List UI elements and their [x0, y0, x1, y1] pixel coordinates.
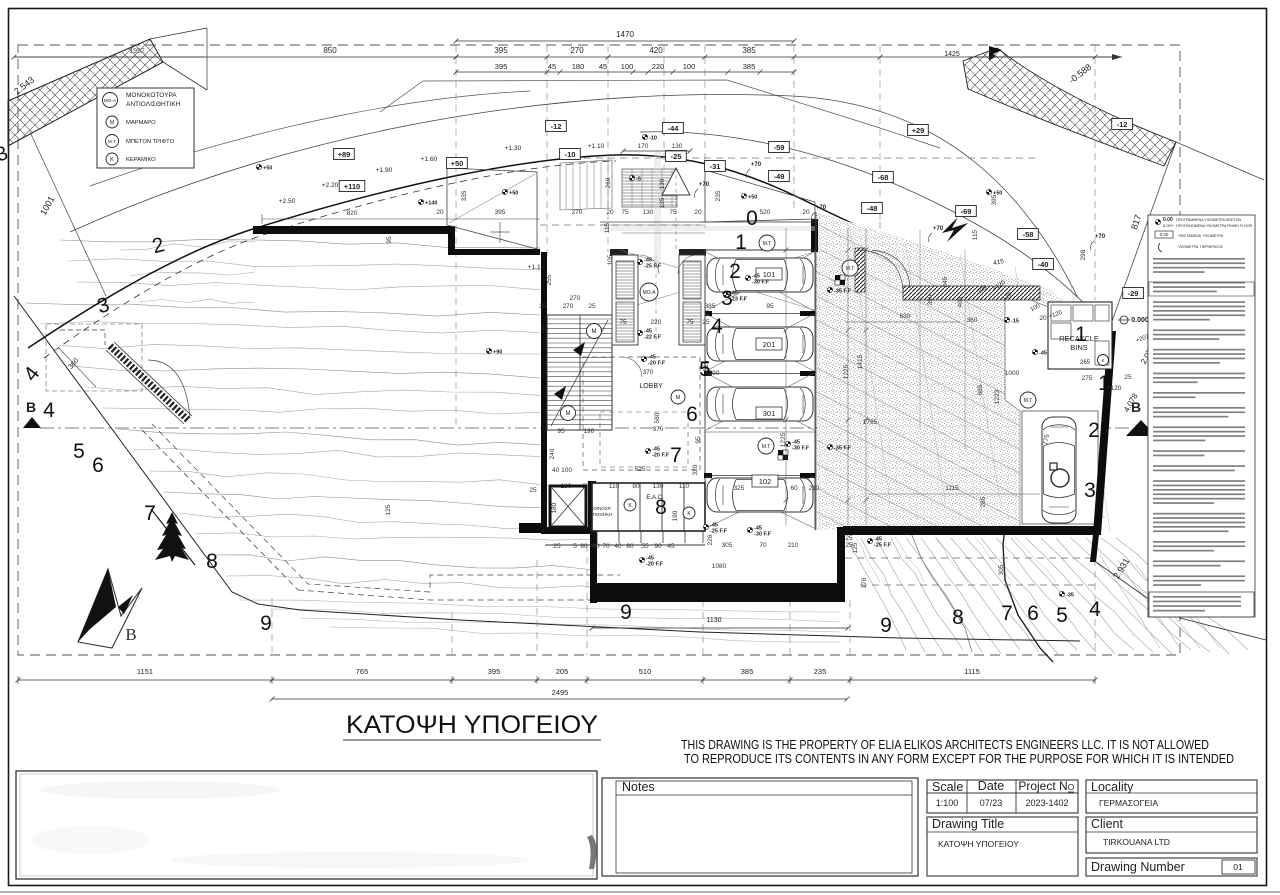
svg-text:20: 20 — [436, 209, 444, 216]
svg-text:ΚΑΤΟΨΗ ΥΠΟΓΕΙΟΥ: ΚΑΤΟΨΗ ΥΠΟΓΕΙΟΥ — [346, 711, 598, 739]
svg-text:190: 190 — [584, 428, 595, 435]
svg-text:-20 F.F: -20 F.F — [648, 361, 666, 367]
svg-text:-10: -10 — [649, 136, 657, 142]
svg-text:520: 520 — [760, 209, 771, 216]
svg-text:LOBBY: LOBBY — [639, 383, 663, 390]
svg-text:335: 335 — [461, 190, 468, 201]
svg-text:+50: +50 — [263, 166, 272, 172]
svg-text:240: 240 — [549, 448, 556, 459]
svg-text:0.000: 0.000 — [1131, 317, 1149, 324]
svg-text:7: 7 — [670, 444, 682, 467]
svg-text:102: 102 — [759, 477, 772, 486]
svg-text:270: 270 — [572, 209, 583, 216]
svg-text:Drawing Number: Drawing Number — [1091, 860, 1185, 874]
svg-text:Date: Date — [978, 779, 1004, 793]
svg-text:1130: 1130 — [706, 617, 721, 624]
svg-text:+1.10: +1.10 — [588, 143, 605, 150]
svg-text:2: 2 — [729, 260, 741, 283]
svg-text:+2.50: +2.50 — [279, 198, 296, 205]
svg-text:45: 45 — [599, 62, 607, 71]
svg-text:M.T: M.T — [1024, 398, 1033, 404]
svg-text:80: 80 — [580, 543, 588, 550]
svg-text:420: 420 — [649, 46, 663, 55]
svg-text:525: 525 — [635, 466, 646, 473]
svg-text:395: 395 — [488, 667, 501, 676]
svg-text:385: 385 — [743, 62, 756, 71]
svg-text:-30 F.F: -30 F.F — [752, 280, 770, 286]
svg-text:1: 1 — [1075, 323, 1087, 346]
svg-text:4: 4 — [43, 399, 55, 422]
svg-text:370: 370 — [653, 426, 664, 433]
svg-text:+70: +70 — [751, 162, 762, 168]
svg-text:ΚΑΤΟΨΗ ΥΠΟΓΕΙΟΥ: ΚΑΤΟΨΗ ΥΠΟΓΕΙΟΥ — [938, 839, 1019, 849]
svg-text:ΠΡΟΤΕΙΝΟΜΕΝΑ ΥΨΟΜΕΤΡΑ FINISH F: ΠΡΟΤΕΙΝΟΜΕΝΑ ΥΨΟΜΕΤΡΑ FINISH FLOOR — [1176, 224, 1253, 228]
svg-text:1000: 1000 — [1005, 370, 1020, 377]
svg-text:TO REPRODUCE ITS CONTENTS IN A: TO REPRODUCE ITS CONTENTS IN ANY FORM EX… — [684, 752, 1234, 766]
svg-text:1: 1 — [1098, 372, 1110, 395]
svg-text:390: 390 — [927, 294, 934, 305]
svg-text:80: 80 — [632, 483, 640, 490]
svg-text:-68: -68 — [878, 173, 889, 182]
svg-text:+70: +70 — [933, 226, 944, 232]
svg-text:4: 4 — [1089, 598, 1101, 621]
svg-text:305: 305 — [998, 564, 1005, 575]
svg-text:201: 201 — [763, 340, 776, 349]
svg-text:-35 F.F: -35 F.F — [834, 289, 852, 295]
svg-text:1115: 1115 — [964, 667, 980, 676]
svg-text:-45: -45 — [1039, 351, 1047, 357]
svg-text:70: 70 — [602, 543, 610, 550]
svg-text:+70: +70 — [816, 205, 827, 211]
svg-text:Notes: Notes — [622, 780, 655, 794]
svg-text:403: 403 — [957, 296, 964, 307]
svg-text:1992: 1992 — [129, 48, 145, 55]
svg-text:-49: -49 — [774, 172, 785, 181]
svg-text:+1.30: +1.30 — [505, 145, 522, 152]
svg-text:25: 25 — [553, 543, 561, 550]
svg-text:6: 6 — [686, 403, 698, 426]
svg-text:685: 685 — [977, 384, 984, 395]
svg-text:M.T: M.T — [763, 241, 772, 247]
svg-text:TIRKOUANA LTD: TIRKOUANA LTD — [1103, 837, 1170, 847]
svg-text:1115: 1115 — [945, 485, 959, 492]
svg-text:20: 20 — [694, 209, 702, 216]
svg-text:+140: +140 — [425, 201, 437, 207]
svg-text:MO-A: MO-A — [642, 290, 656, 296]
svg-text:-15: -15 — [1011, 319, 1019, 325]
svg-text:125: 125 — [852, 542, 859, 553]
svg-text:40 100: 40 100 — [552, 467, 572, 474]
svg-text:395: 395 — [495, 209, 506, 216]
svg-text:ΚΟΙΝΟΧΡ.: ΚΟΙΝΟΧΡ. — [590, 506, 611, 511]
svg-text:-12: -12 — [1117, 120, 1128, 129]
svg-text:-25 F.F: -25 F.F — [874, 543, 892, 549]
svg-text:+50: +50 — [451, 159, 464, 168]
svg-text:-35 F.F: -35 F.F — [834, 446, 852, 452]
svg-text:260: 260 — [605, 177, 612, 188]
svg-text:130: 130 — [643, 209, 654, 216]
svg-text:170: 170 — [638, 143, 649, 150]
svg-text:M: M — [110, 120, 115, 126]
svg-text:25: 25 — [582, 483, 590, 490]
svg-text:ΑΝΤΙΟΛΙΣΘΗΤΙΚΗ: ΑΝΤΙΟΛΙΣΘΗΤΙΚΗ — [126, 101, 181, 108]
svg-text:1415: 1415 — [857, 354, 864, 369]
svg-text:1: 1 — [735, 231, 747, 254]
svg-text:B: B — [125, 625, 136, 644]
svg-text:180: 180 — [561, 483, 572, 490]
svg-text:M.T: M.T — [108, 139, 116, 145]
svg-text:25: 25 — [529, 487, 537, 494]
svg-text:K: K — [110, 157, 114, 163]
svg-text:B: B — [1131, 399, 1141, 415]
svg-text:25: 25 — [539, 303, 547, 310]
svg-text:3: 3 — [1084, 479, 1096, 502]
svg-text:-30 F.F: -30 F.F — [792, 446, 810, 452]
svg-text:90: 90 — [654, 543, 662, 550]
svg-text:80: 80 — [626, 543, 634, 550]
svg-text:Project N: Project N — [1018, 779, 1067, 793]
svg-text:176: 176 — [861, 577, 868, 588]
svg-text:850: 850 — [323, 46, 337, 55]
svg-text:210: 210 — [809, 485, 820, 492]
svg-text:ΠΡΟΓΡΑΜΜΕΝΑ ΥΨΟΜΕΤΡΑ ΜΠΕΤΟΝ: ΠΡΟΓΡΑΜΜΕΝΑ ΥΨΟΜΕΤΡΑ ΜΠΕΤΟΝ — [1176, 218, 1241, 222]
svg-text:3: 3 — [721, 287, 733, 310]
svg-text:370: 370 — [643, 369, 654, 376]
svg-text:+2.20: +2.20 — [322, 182, 339, 189]
svg-text:-5: -5 — [636, 177, 641, 183]
svg-text:100: 100 — [683, 62, 696, 71]
svg-text:270: 270 — [570, 295, 581, 302]
svg-text:Drawing Title: Drawing Title — [932, 817, 1004, 831]
svg-text:385: 385 — [741, 667, 754, 676]
svg-text:-31: -31 — [710, 162, 721, 171]
svg-text:265: 265 — [1080, 360, 1091, 366]
svg-text:Client: Client — [1091, 817, 1123, 831]
svg-text:95: 95 — [557, 428, 565, 435]
svg-text:820: 820 — [347, 210, 358, 217]
svg-text:360: 360 — [967, 317, 978, 324]
svg-text:21: 21 — [541, 325, 549, 332]
svg-text:180: 180 — [572, 62, 585, 71]
svg-text:25: 25 — [702, 319, 710, 326]
svg-text:60: 60 — [790, 485, 798, 492]
svg-text:226: 226 — [707, 534, 714, 545]
svg-text:510: 510 — [639, 667, 652, 676]
svg-text:8: 8 — [655, 496, 667, 519]
svg-text:270: 270 — [570, 46, 584, 55]
svg-text:4: 4 — [711, 315, 723, 338]
svg-text:75: 75 — [669, 209, 677, 216]
svg-text:70: 70 — [759, 542, 767, 549]
svg-text:-20 F.F: -20 F.F — [646, 562, 664, 568]
svg-text:+70: +70 — [1095, 234, 1106, 240]
svg-text:2495: 2495 — [552, 688, 569, 697]
svg-text:-59: -59 — [774, 143, 785, 152]
svg-text:180: 180 — [551, 502, 558, 513]
svg-text:1470: 1470 — [616, 30, 634, 39]
svg-text:20: 20 — [802, 209, 810, 216]
svg-text:-25 F.F: -25 F.F — [710, 529, 728, 535]
svg-text:-48: -48 — [867, 204, 878, 213]
svg-text:55: 55 — [641, 543, 649, 550]
svg-text:6: 6 — [92, 454, 104, 477]
svg-text:1151: 1151 — [137, 667, 153, 676]
svg-text:-29: -29 — [1128, 289, 1139, 298]
svg-text:45: 45 — [667, 543, 675, 550]
svg-text:395: 395 — [495, 62, 508, 71]
svg-text:395: 395 — [494, 46, 508, 55]
svg-text:ΑΠΟΘΗΚΗ: ΑΠΟΘΗΚΗ — [590, 512, 613, 517]
svg-text:110: 110 — [609, 483, 620, 490]
svg-text:ΥΦΙΣΤΑΜΕΝΑ ΥΨΟΜΕΤΡΑ: ΥΦΙΣΤΑΜΕΝΑ ΥΨΟΜΕΤΡΑ — [1178, 234, 1224, 238]
svg-text:210: 210 — [788, 542, 799, 549]
svg-text:M.T: M.T — [846, 266, 855, 272]
svg-text:ΓΕΡΜΑΣΟΓΕΙΑ: ΓΕΡΜΑΣΟΓΕΙΑ — [1099, 798, 1158, 808]
svg-text:K: K — [1101, 358, 1104, 363]
svg-text:5: 5 — [699, 358, 711, 381]
svg-text:255: 255 — [546, 274, 553, 285]
svg-text:Scale: Scale — [932, 780, 963, 794]
svg-text:115: 115 — [604, 222, 611, 233]
svg-text:1:100: 1:100 — [936, 798, 959, 808]
svg-text:M: M — [676, 395, 681, 401]
svg-text:8: 8 — [206, 550, 218, 573]
svg-text:190: 190 — [672, 510, 679, 521]
svg-text:385: 385 — [705, 303, 716, 310]
svg-text:+1.60: +1.60 — [421, 156, 438, 163]
svg-text:25: 25 — [1124, 374, 1132, 381]
svg-text:+1.10: +1.10 — [528, 264, 545, 271]
svg-text:-25: -25 — [671, 152, 682, 161]
svg-text:75: 75 — [621, 209, 629, 216]
svg-text:130: 130 — [659, 178, 666, 189]
svg-text:285: 285 — [980, 496, 987, 507]
svg-text:+89: +89 — [338, 150, 351, 159]
svg-text:40: 40 — [614, 543, 622, 550]
svg-text:220: 220 — [651, 319, 662, 326]
svg-text:+50: +50 — [509, 191, 518, 197]
svg-text:95: 95 — [386, 236, 393, 244]
svg-text:235: 235 — [715, 190, 722, 201]
svg-text:25: 25 — [845, 535, 853, 542]
svg-text:-40: -40 — [1038, 260, 1049, 269]
svg-text:115: 115 — [972, 229, 979, 240]
svg-text:9: 9 — [880, 614, 892, 637]
svg-text:-44: -44 — [668, 124, 680, 133]
svg-text:ΜΑΡΜΑΡΟ: ΜΑΡΜΑΡΟ — [126, 120, 156, 126]
svg-text:-69: -69 — [961, 207, 972, 216]
svg-text:-25 F.F: -25 F.F — [644, 264, 662, 270]
svg-text:+50: +50 — [748, 195, 757, 201]
svg-text:101: 101 — [763, 270, 776, 279]
svg-text:298: 298 — [1080, 249, 1087, 260]
svg-text:5: 5 — [1056, 604, 1068, 627]
svg-text:M: M — [566, 411, 571, 417]
svg-text:20: 20 — [606, 209, 614, 216]
svg-text:8: 8 — [952, 606, 964, 629]
svg-text:O: O — [1068, 782, 1075, 792]
svg-text:20: 20 — [1039, 315, 1047, 322]
svg-text:270: 270 — [563, 303, 574, 310]
svg-text:ΜΠΕΤΟΝ ΤΡΙΦΤΟ: ΜΠΕΤΟΝ ΤΡΙΦΤΟ — [126, 139, 175, 145]
svg-text:235: 235 — [814, 667, 827, 676]
svg-text:100: 100 — [621, 62, 634, 71]
svg-text:30: 30 — [592, 543, 600, 550]
svg-text:765: 765 — [356, 667, 369, 676]
svg-text:THIS DRAWING IS THE PROPERTY O: THIS DRAWING IS THE PROPERTY OF ELIA ELI… — [681, 738, 1209, 752]
svg-text:-58: -58 — [1023, 230, 1034, 239]
svg-text:205: 205 — [556, 667, 569, 676]
svg-text:110: 110 — [679, 483, 690, 490]
svg-text:-30 F.F: -30 F.F — [754, 532, 772, 538]
svg-text:580: 580 — [654, 412, 661, 423]
svg-text:0.00Υ: 0.00Υ — [1163, 223, 1174, 228]
svg-text:+1.90: +1.90 — [376, 167, 393, 174]
svg-text:5: 5 — [73, 440, 85, 463]
svg-text:5: 5 — [573, 543, 577, 550]
svg-text:-12: -12 — [551, 122, 562, 131]
svg-text:ΥΨΟΜΕΤΡΑ ΠΕΡΙΦΡΑΞΗΣ: ΥΨΟΜΕΤΡΑ ΠΕΡΙΦΡΑΞΗΣ — [1178, 245, 1224, 249]
svg-text:135: 135 — [659, 197, 666, 208]
svg-text:75: 75 — [686, 319, 694, 326]
svg-text:395: 395 — [991, 194, 998, 205]
svg-text:245: 245 — [942, 276, 949, 287]
svg-text:2023-1402: 2023-1402 — [1025, 798, 1068, 808]
svg-text:9: 9 — [620, 601, 632, 624]
svg-text:7: 7 — [1001, 602, 1013, 625]
svg-text:9: 9 — [260, 612, 272, 635]
svg-text:-10: -10 — [565, 150, 576, 159]
svg-text:630: 630 — [900, 313, 911, 320]
svg-text:-22 F.F: -22 F.F — [644, 335, 662, 341]
svg-text:MO-A: MO-A — [104, 98, 117, 104]
svg-text:75: 75 — [619, 319, 627, 326]
svg-text:ΜΟΝΟΚΟΤΟΥΡΑ: ΜΟΝΟΚΟΤΟΥΡΑ — [126, 92, 177, 99]
svg-text:M: M — [592, 329, 597, 335]
svg-text:1765: 1765 — [863, 419, 878, 426]
svg-text:M.T: M.T — [762, 444, 771, 450]
svg-text:130: 130 — [672, 143, 683, 150]
svg-text:6: 6 — [1027, 602, 1039, 625]
svg-text:95: 95 — [766, 303, 774, 310]
svg-text:130: 130 — [653, 483, 664, 490]
svg-text:325: 325 — [734, 485, 745, 492]
svg-text:+110: +110 — [344, 182, 360, 191]
svg-text:320: 320 — [692, 464, 699, 475]
svg-text:-35: -35 — [1066, 593, 1074, 599]
svg-text:ΚΕΡΑΜΙΚΟ: ΚΕΡΑΜΙΚΟ — [126, 157, 156, 163]
svg-text:25: 25 — [588, 303, 596, 310]
svg-text:2: 2 — [1088, 419, 1100, 442]
svg-text:275: 275 — [1082, 375, 1093, 382]
svg-text:385: 385 — [742, 46, 756, 55]
svg-text:+70: +70 — [699, 182, 710, 188]
svg-text:1225: 1225 — [843, 364, 850, 379]
svg-text:125: 125 — [385, 504, 392, 515]
svg-text:B: B — [26, 399, 36, 415]
svg-text:0.00: 0.00 — [1160, 232, 1169, 237]
svg-text:07/23: 07/23 — [980, 798, 1003, 808]
svg-text:-20 F.F: -20 F.F — [652, 453, 670, 459]
svg-text:1080: 1080 — [712, 563, 727, 570]
svg-text:01: 01 — [1233, 862, 1243, 872]
svg-text:Locality: Locality — [1091, 780, 1134, 794]
svg-text:301: 301 — [763, 409, 776, 418]
svg-text:+29: +29 — [912, 126, 925, 135]
svg-text:+90: +90 — [493, 350, 502, 356]
svg-text:1223: 1223 — [994, 389, 1001, 404]
svg-text:105: 105 — [607, 254, 614, 265]
svg-text:220: 220 — [652, 62, 665, 71]
svg-text:305: 305 — [722, 542, 733, 549]
svg-text:95: 95 — [695, 436, 702, 444]
svg-text:0: 0 — [746, 207, 758, 230]
